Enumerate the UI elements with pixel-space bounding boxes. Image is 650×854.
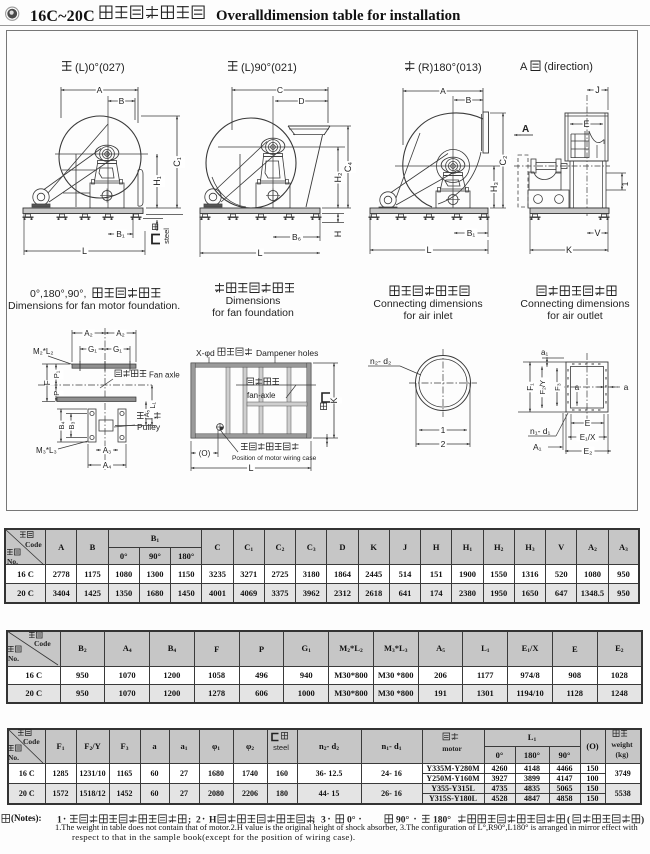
svg-text:): ): [641, 815, 644, 826]
